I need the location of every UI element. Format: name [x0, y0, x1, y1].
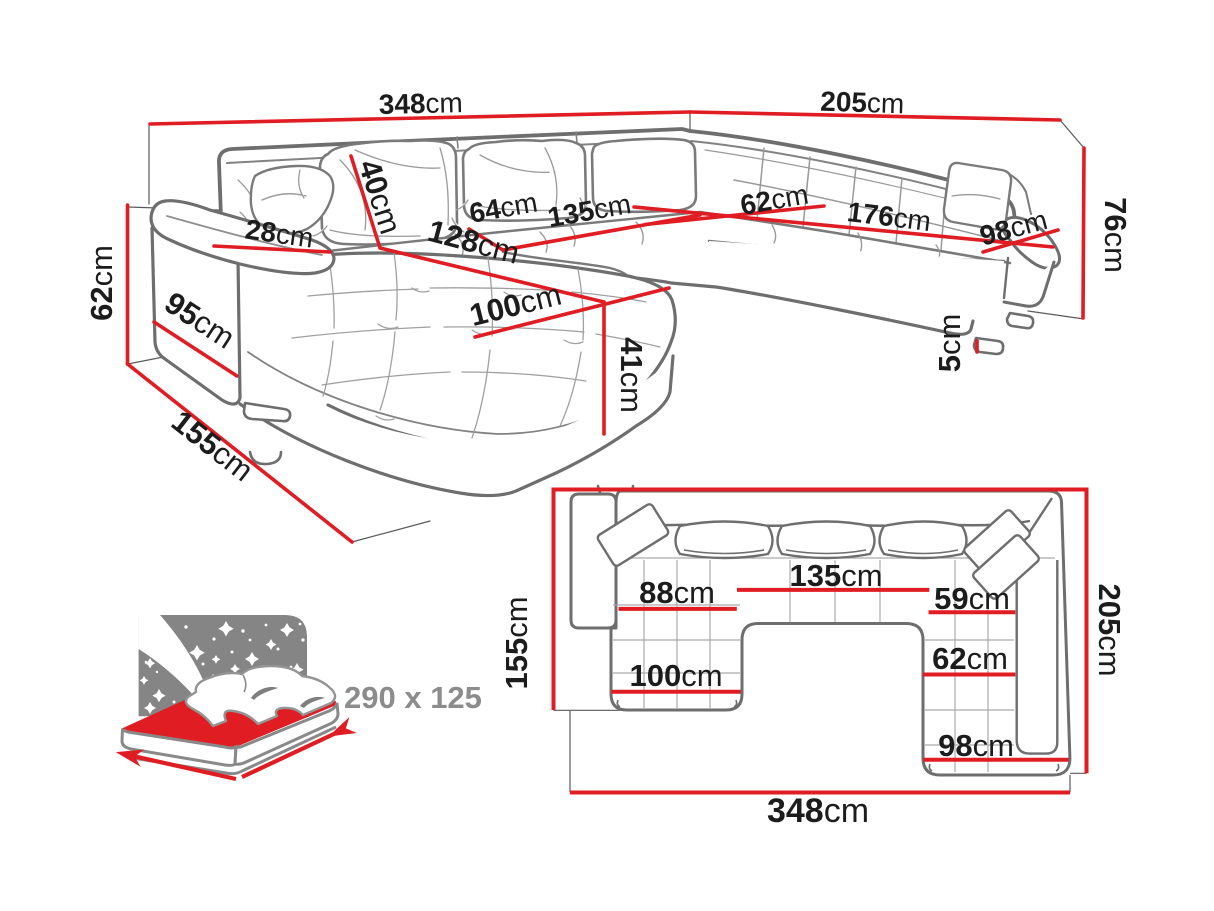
- svg-text:76cm: 76cm: [1098, 197, 1133, 273]
- svg-text:62cm: 62cm: [932, 641, 1008, 676]
- svg-text:5cm: 5cm: [932, 314, 967, 373]
- svg-text:41cm: 41cm: [614, 337, 649, 413]
- svg-text:205cm: 205cm: [1092, 583, 1127, 676]
- svg-text:98cm: 98cm: [938, 728, 1014, 763]
- svg-text:135cm: 135cm: [789, 558, 882, 593]
- svg-text:155cm: 155cm: [499, 596, 534, 689]
- svg-text:100cm: 100cm: [629, 658, 722, 693]
- svg-text:205cm: 205cm: [820, 86, 905, 120]
- svg-text:88cm: 88cm: [639, 575, 715, 610]
- svg-text:348cm: 348cm: [767, 792, 869, 830]
- svg-text:59cm: 59cm: [934, 581, 1010, 616]
- svg-text:62cm: 62cm: [84, 245, 119, 321]
- svg-text:290 x 125: 290 x 125: [344, 680, 482, 715]
- svg-text:348cm: 348cm: [378, 87, 463, 120]
